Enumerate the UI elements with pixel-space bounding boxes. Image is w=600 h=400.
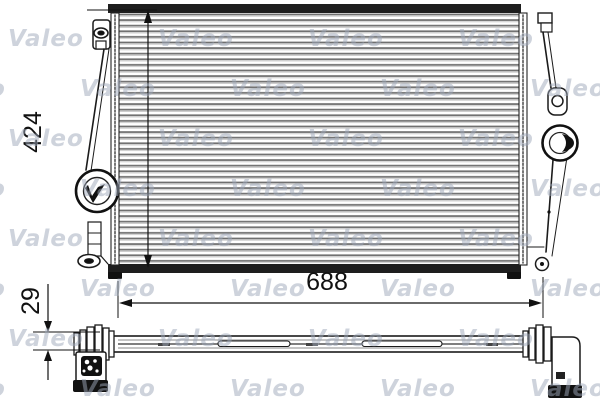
top-tank-band: [108, 4, 521, 13]
depth-dimension-label: 29: [17, 287, 45, 315]
arrow-right-icon: [529, 299, 542, 307]
intercooler-diagram: 424 688 29: [0, 0, 600, 400]
height-dimension-label: 424: [19, 111, 47, 153]
width-dimension-label: 688: [306, 268, 348, 296]
front-view: [76, 4, 578, 279]
left-tank: [78, 20, 110, 268]
arrow-down-icon: [44, 321, 52, 332]
radiator-core: [119, 13, 519, 265]
left-port-icon: [76, 170, 118, 212]
arrow-left-icon: [119, 299, 132, 307]
right-bracket: [548, 337, 582, 398]
left-side-plate: [111, 13, 119, 265]
bottom-view: [73, 325, 582, 398]
left-bracket: [73, 352, 108, 392]
dimension-width: 688: [118, 268, 543, 318]
left-mounting-foot: [108, 272, 122, 279]
arrow-up-icon: [44, 350, 52, 361]
technical-drawing-page: ValeoValeoValeoValeoValeoValeoValeoValeo…: [0, 0, 600, 400]
right-connector: [523, 325, 551, 363]
right-mounting-foot: [507, 272, 521, 279]
right-port-icon: [543, 126, 578, 161]
right-side-plate: [519, 13, 527, 265]
